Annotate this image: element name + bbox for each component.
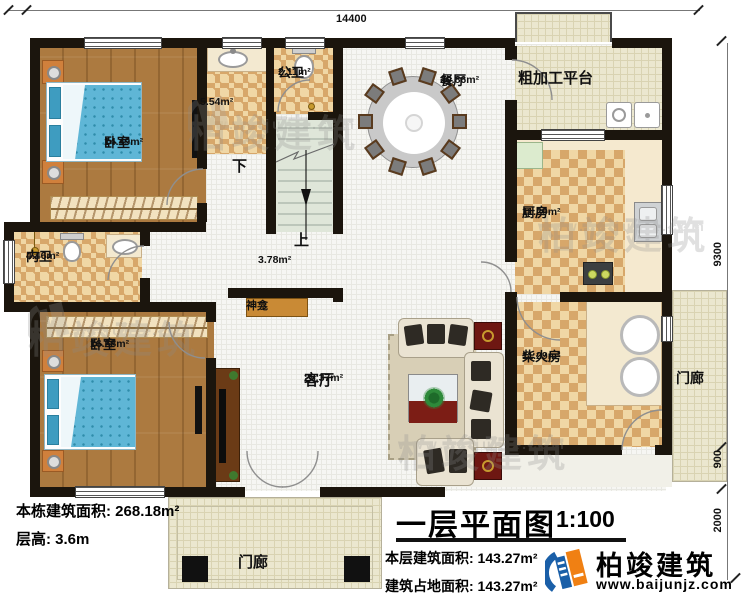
top-dimension-line bbox=[8, 10, 700, 11]
dimension-right-9300: 9300 bbox=[712, 242, 724, 266]
building-total-area: 本栋建筑面积: 268.18m² bbox=[16, 500, 179, 521]
floor-area-line: 本层建筑面积: 143.27m² bbox=[385, 548, 537, 568]
storey-height: 层高: 3.6m bbox=[16, 528, 89, 549]
floor-plan: 柏竣建筑www.baijunjz.com 柏竣建筑www.baijunjz.co… bbox=[0, 0, 750, 604]
footprint-area-line: 建筑占地面积: 143.27m² bbox=[385, 576, 537, 596]
title-underline bbox=[396, 538, 626, 542]
brand-url: www.baijunjz.com bbox=[596, 576, 733, 592]
dimension-right-900: 900 bbox=[712, 450, 724, 468]
dimension-top: 14400 bbox=[336, 13, 367, 25]
right-dimension-line bbox=[727, 43, 728, 580]
brand-logo-icon bbox=[545, 543, 593, 597]
dimension-right-2000: 2000 bbox=[712, 508, 724, 532]
plan-scale: 1:100 bbox=[556, 506, 615, 533]
